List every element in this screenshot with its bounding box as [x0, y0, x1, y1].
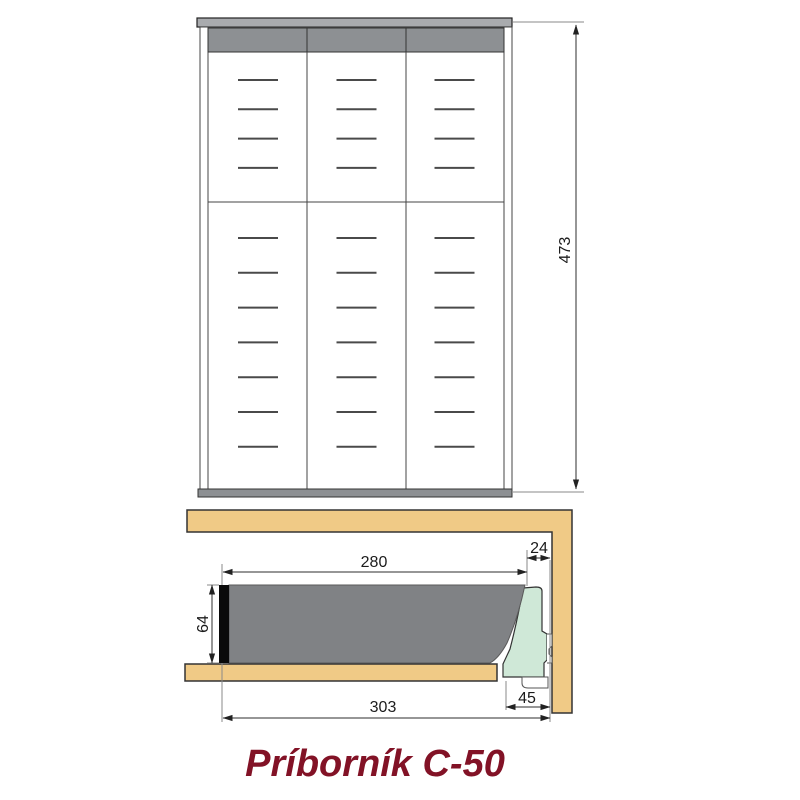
dim-473: 473 — [513, 22, 584, 492]
drawing-page: 473 280 24 64 303 — [0, 0, 800, 800]
drawing-title: Príborník C-50 — [245, 743, 505, 785]
tray-body-outline — [200, 27, 512, 489]
top-rail — [197, 18, 512, 27]
side-view: 280 24 64 303 45 — [185, 510, 572, 722]
tray-front-edge — [219, 585, 229, 663]
tray-side-profile — [229, 585, 525, 663]
technical-drawing: 473 280 24 64 303 — [0, 0, 800, 800]
dim-473-label: 473 — [557, 237, 574, 264]
dim-280-label: 280 — [361, 554, 388, 571]
shelf-panel — [185, 664, 497, 681]
back-band-left — [208, 28, 307, 52]
top-view — [197, 18, 512, 497]
dim-64-label: 64 — [195, 615, 212, 633]
back-band-middle — [307, 28, 406, 52]
dim-303-label: 303 — [370, 699, 397, 716]
bottom-bar — [198, 489, 512, 497]
back-band-right — [406, 28, 504, 52]
runner-foot-outline — [522, 677, 548, 688]
dim-24-label: 24 — [530, 540, 548, 557]
dim-45-label: 45 — [518, 690, 536, 707]
